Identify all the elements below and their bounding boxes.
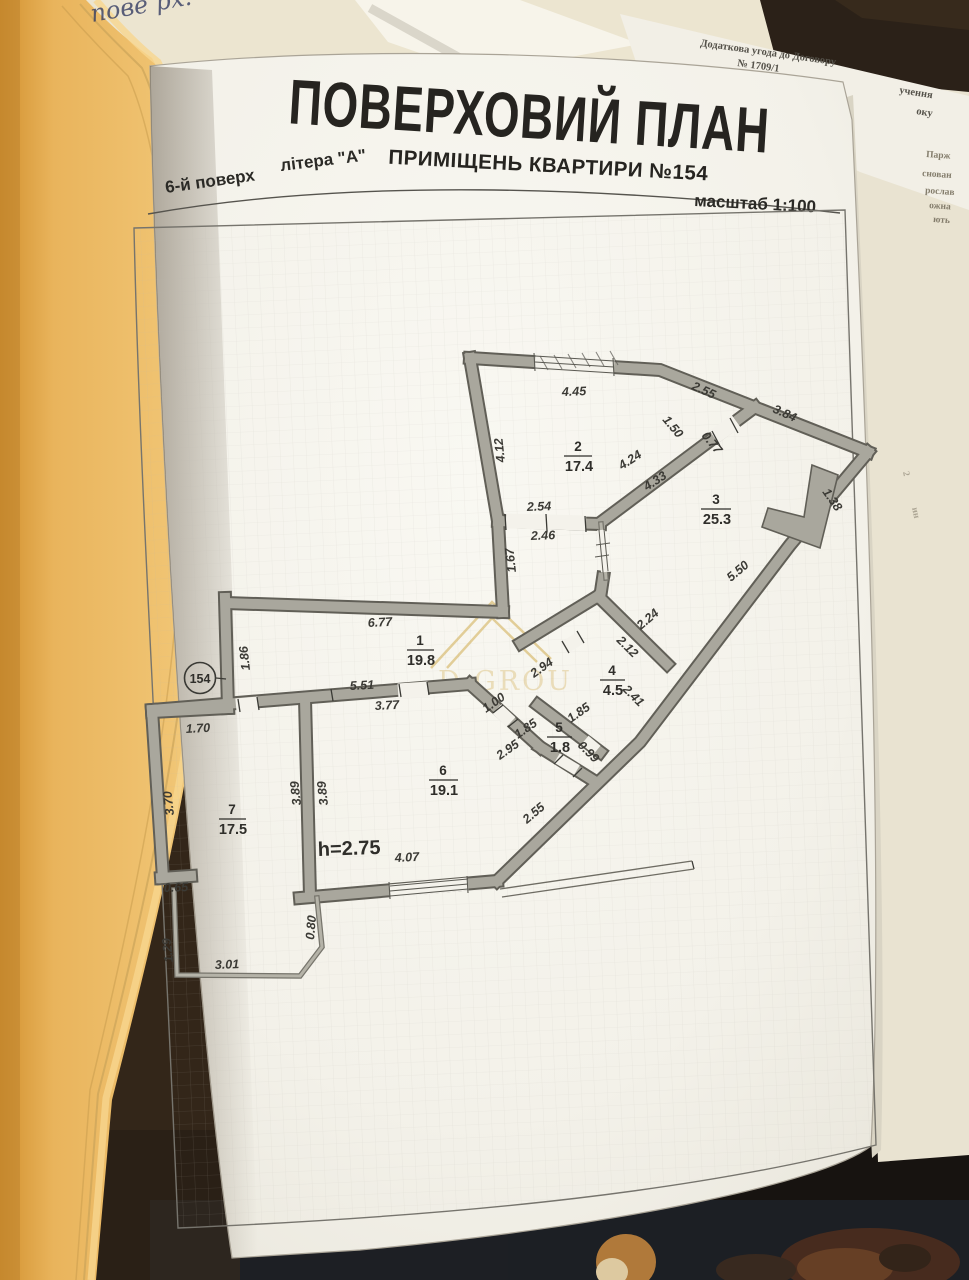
room-5-number: 5 [555,720,563,735]
scene-svg: Додаткова угода до Договору учення № 170… [0,0,969,1280]
fragment-2: снован [922,169,953,181]
room-1-number: 1 [416,633,424,648]
room-1-area: 19.8 [407,653,435,669]
dim-4-45: 4.45 [561,384,588,399]
room-2-number: 2 [574,439,582,454]
dim-3-70: 3.70 [161,790,177,816]
photo-scene: Додаткова угода до Договору учення № 170… [0,0,969,1280]
room-3-number: 3 [712,492,720,507]
dim-1-29: 1.29 [160,937,176,963]
dim-4-07: 4.07 [393,850,420,865]
dim-5-51: 5.51 [349,678,374,693]
fragment-4: ожна [929,201,952,213]
dim-2-54: 2.54 [526,499,552,514]
dim-1-70: 1.70 [185,721,210,736]
room-7-number: 7 [228,802,236,817]
dim-3-01: 3.01 [215,957,240,972]
ceiling-height-label: h=2.75 [317,837,381,861]
dim-2-46: 2.46 [530,528,557,543]
dim-1-86: 1.86 [236,644,253,671]
dim-1-67: 1.67 [502,546,519,573]
room-5-area: 1.8 [550,740,570,756]
fragment-3: рослав [925,186,955,198]
dim-3-89-a: 3.89 [288,780,304,806]
room-2-area: 17.4 [565,459,593,475]
fragment-5: ють [933,215,950,226]
room-4-number: 4 [608,663,616,678]
room-7-area: 17.5 [219,822,247,838]
book-spine-edge [0,0,20,1280]
dim-3-77: 3.77 [374,698,400,713]
room-6-number: 6 [439,763,447,778]
fragment-1: Парж [926,150,951,162]
dim-4-12: 4.12 [492,437,509,464]
room-3-area: 25.3 [703,512,731,528]
dim-3-89-b: 3.89 [315,780,331,806]
dim-0-80: 0.80 [303,915,319,941]
dim-6-77: 6.77 [367,615,393,630]
room-6-area: 19.1 [430,783,458,799]
badge-number: 154 [190,672,211,686]
dim-0-65: 0.65 [164,880,190,895]
